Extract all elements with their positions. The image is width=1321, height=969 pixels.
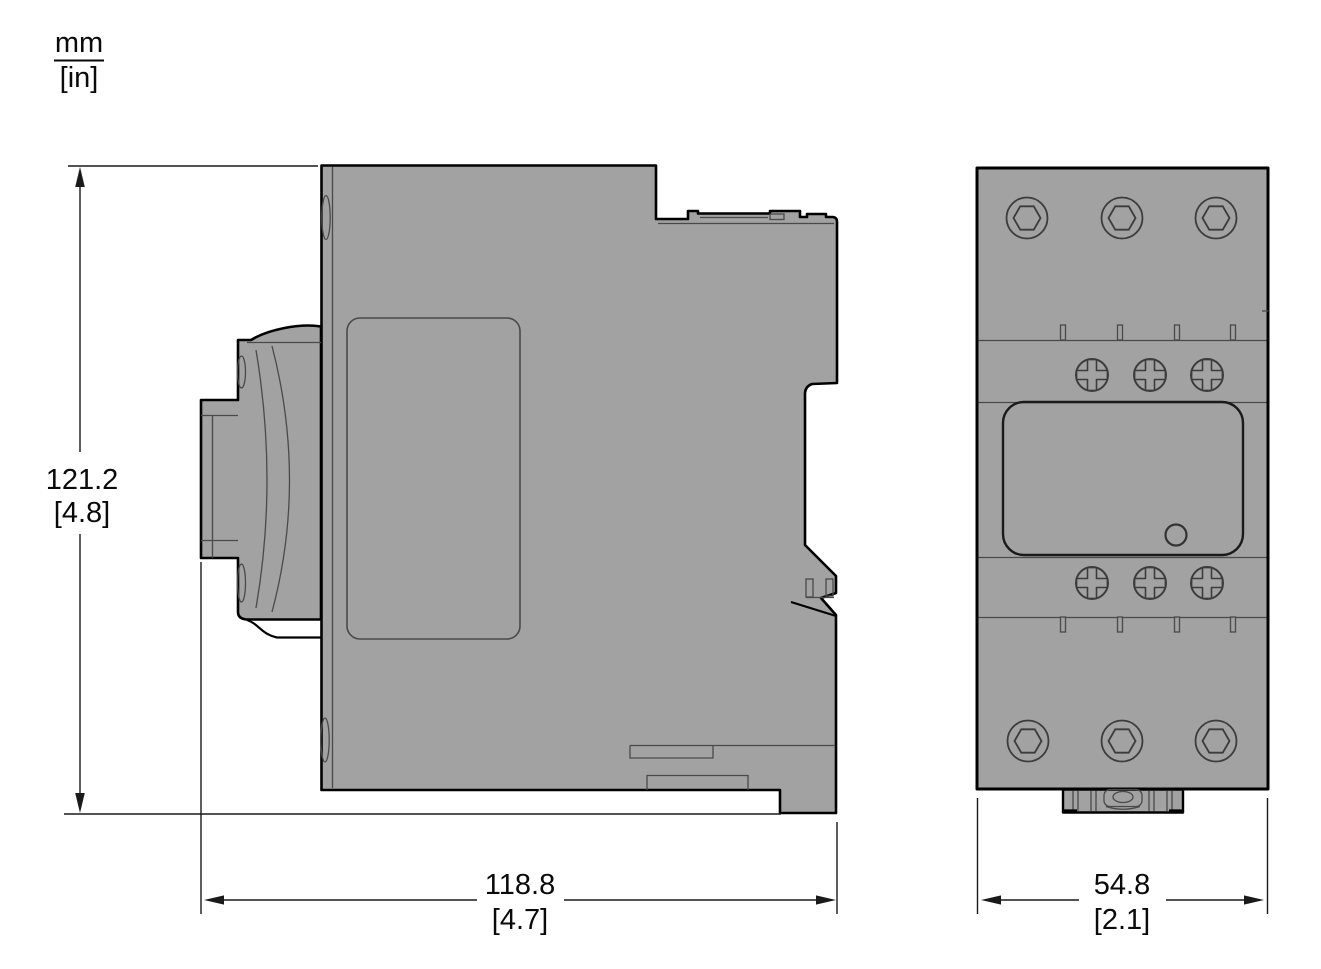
arrow-left-icon [204, 895, 224, 904]
dimension-drawing-page: mm [in] 121.2 [4.8] 118.8 [4.7] 54.8 [2.… [0, 0, 1321, 969]
top-tab-detail [770, 214, 784, 220]
phillips-screw-icon [1076, 567, 1108, 599]
terminal-tick [1175, 325, 1180, 340]
units-legend: mm [in] [54, 27, 104, 94]
terminal-tick [1175, 617, 1180, 632]
arrow-right-icon [1244, 895, 1264, 904]
height-in-label: [4.8] [54, 497, 110, 529]
coil-skirt-line [247, 620, 321, 638]
front-view-outline [977, 168, 1268, 789]
terminal-tick [1118, 325, 1123, 340]
phillips-screw-icon [1191, 567, 1223, 599]
front-view [977, 168, 1269, 813]
units-primary-label: mm [55, 27, 103, 59]
arrow-up-icon [75, 167, 85, 187]
front-width-mm-label: 54.8 [1094, 869, 1150, 901]
terminal-tick [1231, 617, 1236, 632]
phillips-screw-icon [1134, 567, 1166, 599]
front-width-in-label: [2.1] [1094, 904, 1150, 936]
phillips-screw-icon [1191, 359, 1223, 391]
units-secondary-label: [in] [60, 62, 99, 94]
terminal-tick [1231, 325, 1236, 340]
dimension-drawing: mm [in] 121.2 [4.8] 118.8 [4.7] 54.8 [2.… [0, 0, 1321, 969]
terminal-tick [1118, 617, 1123, 632]
phillips-screw-icon [1076, 359, 1108, 391]
arrow-left-icon [981, 895, 1001, 904]
side-view-outline [322, 166, 838, 814]
side-view [201, 166, 837, 814]
height-mm-label: 121.2 [46, 464, 119, 496]
arrow-down-icon [75, 793, 85, 813]
phillips-screw-icon [1134, 359, 1166, 391]
terminal-tick [1061, 617, 1066, 632]
front-width-dimension: 54.8 [2.1] [978, 798, 1268, 936]
side-width-mm-label: 118.8 [485, 869, 555, 901]
side-width-in-label: [4.7] [492, 904, 548, 936]
arrow-right-icon [816, 895, 836, 904]
terminal-tick [1061, 325, 1066, 340]
